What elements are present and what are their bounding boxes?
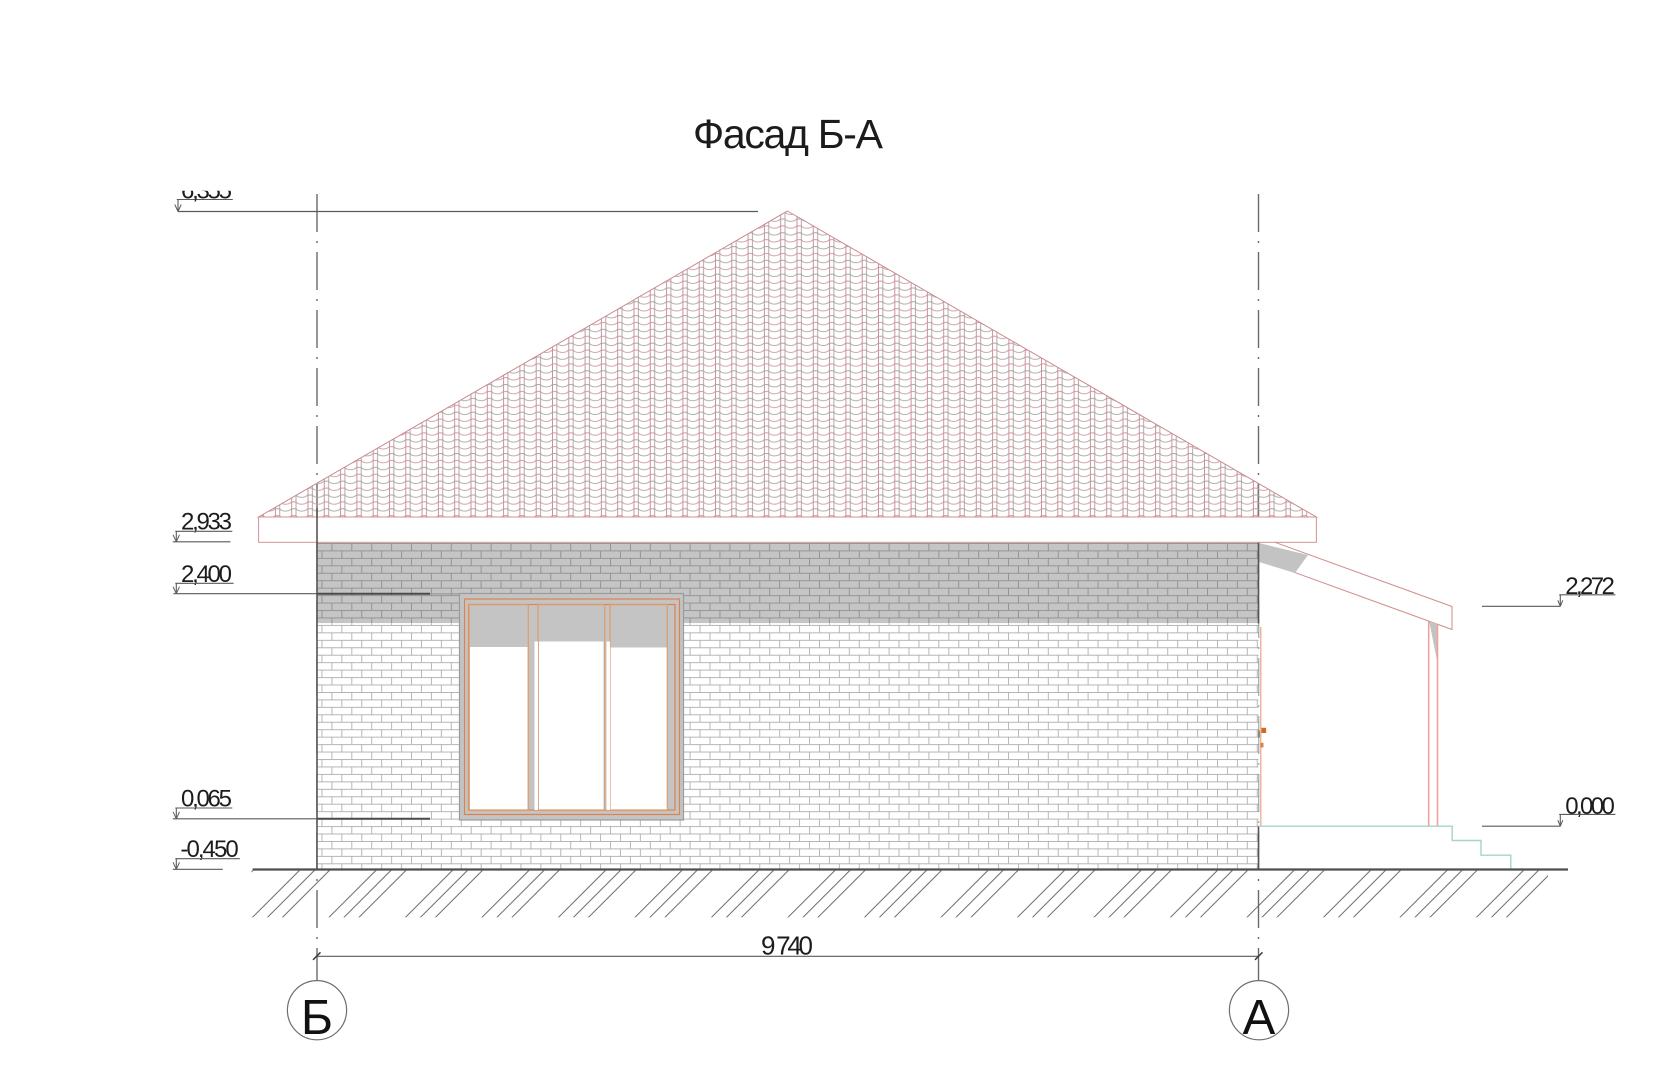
svg-text:0,000: 0,000 [1565, 793, 1615, 820]
svg-text:Б: Б [301, 991, 333, 1045]
svg-text:9 740: 9 740 [761, 931, 813, 961]
svg-text:2,272: 2,272 [1565, 573, 1615, 600]
svg-text:А: А [1243, 991, 1276, 1045]
svg-text:2,400: 2,400 [181, 561, 232, 588]
svg-text:Фасад Б-А: Фасад Б-А [693, 111, 884, 157]
